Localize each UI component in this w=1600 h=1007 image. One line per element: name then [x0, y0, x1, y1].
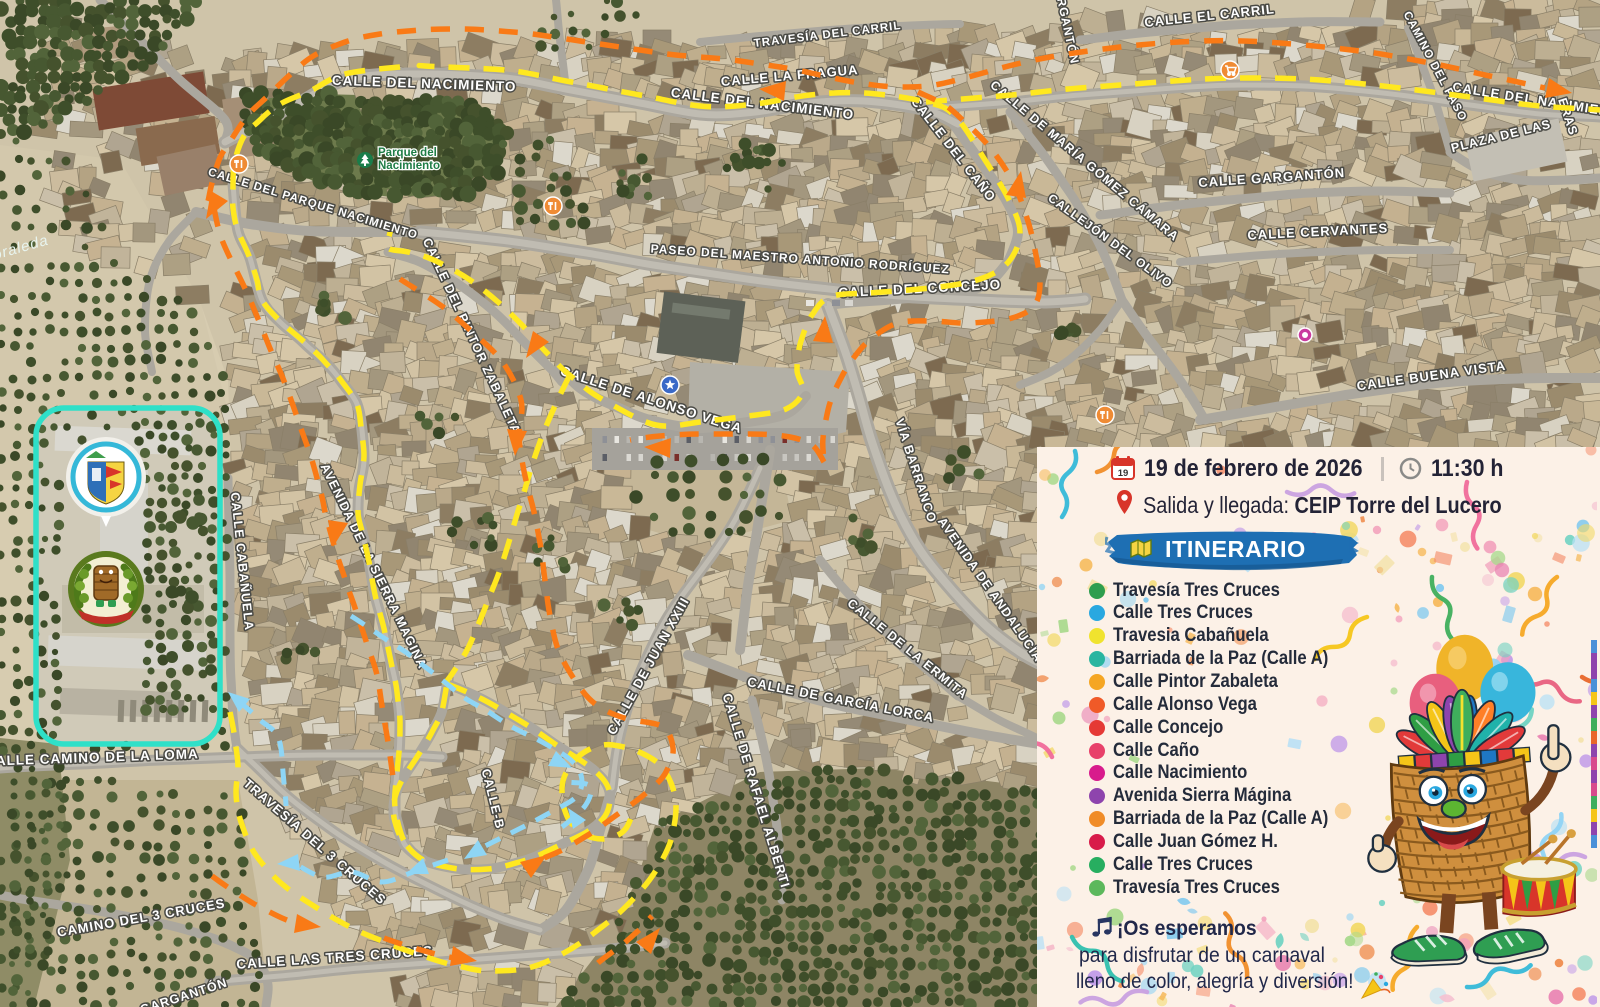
- svg-text:19: 19: [1118, 468, 1129, 479]
- svg-text:Parque del: Parque del: [378, 147, 437, 159]
- svg-text:Nacimiento: Nacimiento: [378, 160, 440, 172]
- svg-text:ITINERARIO: ITINERARIO: [1165, 536, 1306, 562]
